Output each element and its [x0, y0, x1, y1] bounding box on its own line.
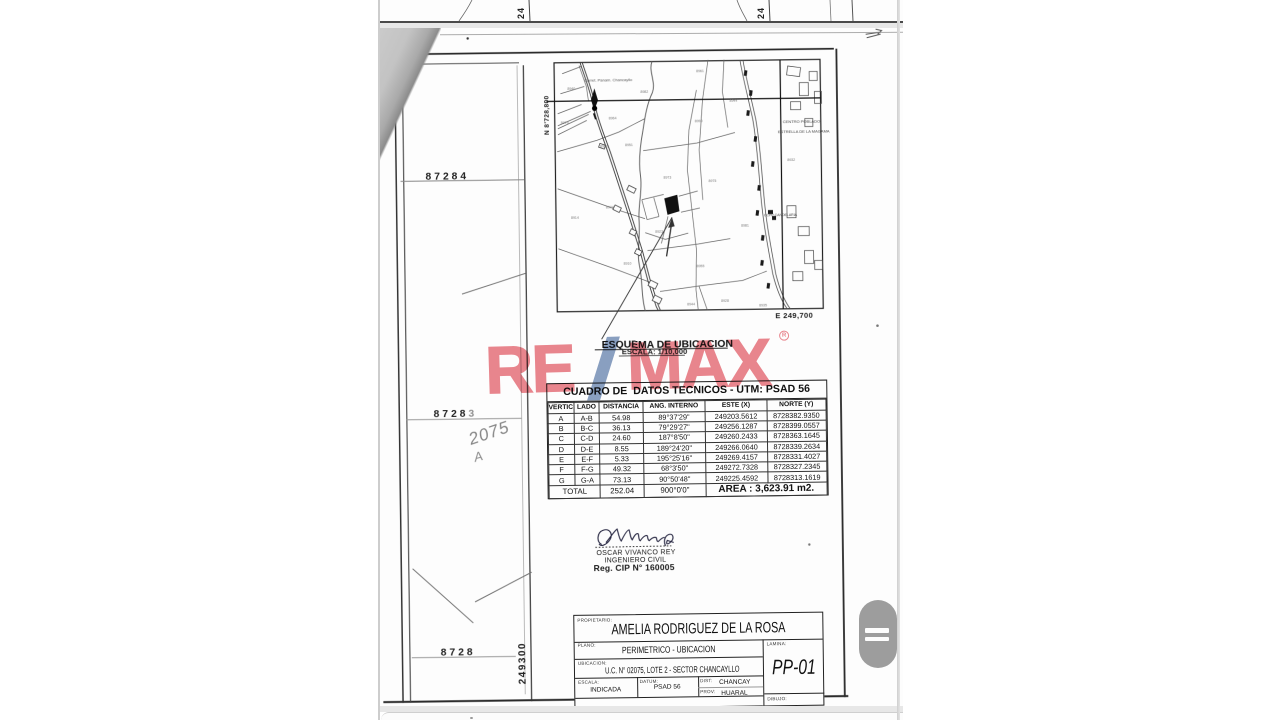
svg-text:24: 24: [516, 7, 526, 19]
svg-text:24: 24: [756, 7, 766, 19]
